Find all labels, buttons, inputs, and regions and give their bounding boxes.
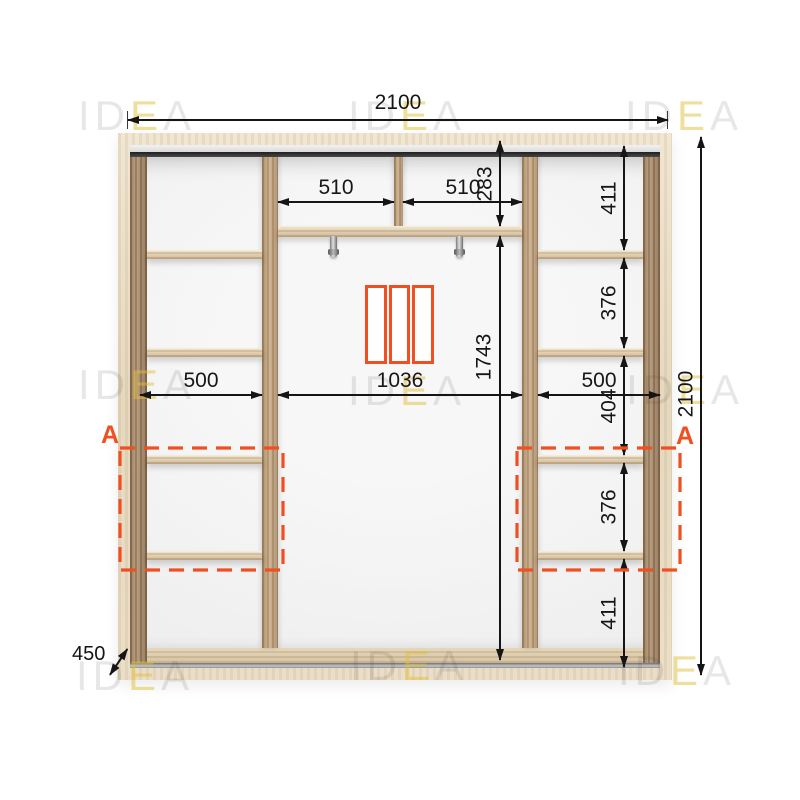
left-shelf-1 — [147, 250, 262, 259]
left-side-panel — [130, 157, 147, 663]
dim-line-top-right-510 — [403, 201, 522, 203]
wardrobe-drawing: IDEA IDEA IDEA IDEA IDEA IDEA IDEA IDEA … — [0, 0, 800, 800]
section-marker-right: A — [676, 424, 694, 449]
dim-line-overall-height — [700, 137, 702, 675]
dim-line-left-500 — [140, 394, 262, 396]
dim-right-404: 404 — [599, 388, 620, 423]
dim-top-left-510: 510 — [318, 177, 353, 198]
dim-center-height: 1743 — [474, 334, 495, 381]
dim-line-overall-width — [128, 119, 668, 121]
top-center-divider — [394, 157, 403, 226]
left-partition — [262, 157, 278, 648]
dim-center-width: 1036 — [377, 370, 424, 391]
dim-right-376-upper: 376 — [599, 285, 620, 320]
dim-left-column-width: 500 — [183, 370, 218, 391]
idea-watermark: IDEA — [625, 95, 743, 137]
dim-right-411-bottom: 411 — [599, 596, 620, 629]
door-panel-icon — [389, 285, 411, 364]
dim-line-right-411-top — [623, 146, 625, 250]
dim-overall-height: 2100 — [676, 371, 697, 418]
door-panel-icon — [365, 285, 387, 364]
dim-line-1036 — [278, 394, 522, 396]
section-a-frame-left — [118, 446, 285, 572]
section-marker-left: A — [101, 423, 119, 448]
sliding-door-bottom-track — [130, 663, 660, 668]
door-panel-icon — [412, 285, 434, 364]
right-partition — [522, 157, 538, 648]
section-a-frame-right — [515, 446, 682, 572]
dim-line-top-left-510 — [278, 201, 394, 203]
right-side-panel — [643, 157, 660, 663]
dim-line-right-376-upper — [623, 258, 625, 348]
hanger-rail-hook-left — [330, 236, 337, 257]
dim-top-section-height: 283 — [475, 166, 496, 201]
dim-line-283 — [499, 141, 501, 226]
left-shelf-2 — [147, 348, 262, 357]
hanger-rail-hook-right — [456, 236, 463, 257]
top-inner-panel — [130, 145, 660, 152]
dim-line-right-411-bottom — [623, 559, 625, 667]
center-top-shelf — [278, 226, 522, 237]
dim-line-1743 — [499, 236, 501, 660]
dim-depth: 450 — [72, 644, 105, 664]
cabinet-floor-panel — [130, 648, 660, 663]
dim-right-411-top: 411 — [599, 181, 620, 214]
dim-overall-width: 2100 — [375, 92, 422, 113]
sliding-doors-icon — [365, 285, 434, 364]
dim-line-right-404 — [623, 356, 625, 455]
